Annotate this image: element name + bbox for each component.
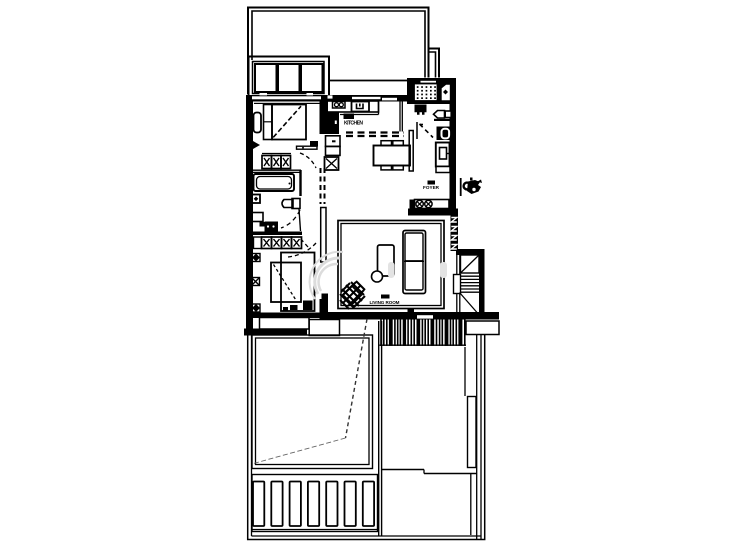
- svg-text:FOYER: FOYER: [423, 185, 440, 190]
- svg-text:LIVING ROOM: LIVING ROOM: [370, 300, 400, 305]
- svg-text:KITCHEN: KITCHEN: [344, 121, 363, 127]
